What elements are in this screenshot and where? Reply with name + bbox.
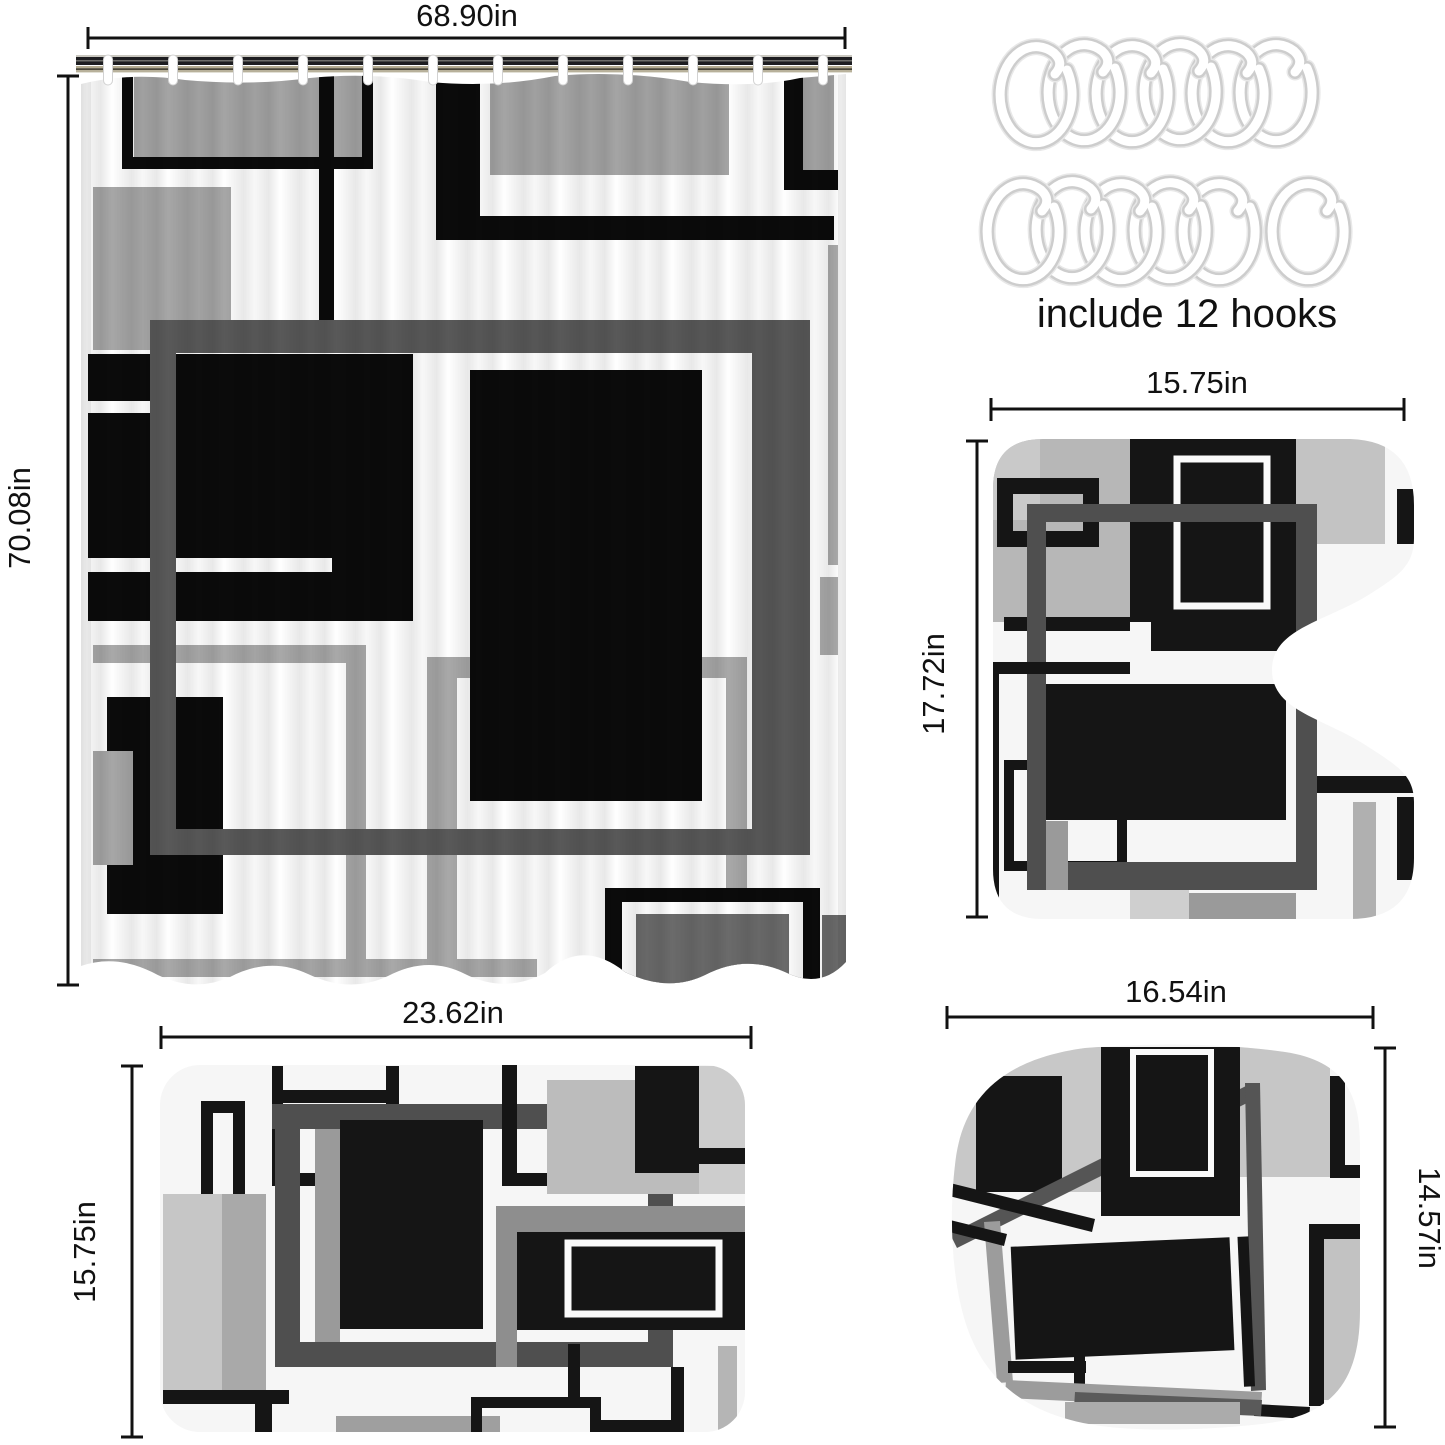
svg-text:70.08in: 70.08in <box>2 467 37 569</box>
svg-text:23.62in: 23.62in <box>402 995 504 1030</box>
svg-text:include 12 hooks: include 12 hooks <box>1037 292 1337 336</box>
svg-text:14.57in: 14.57in <box>1412 1167 1445 1269</box>
svg-text:68.90in: 68.90in <box>416 0 518 33</box>
svg-text:15.75in: 15.75in <box>67 1201 102 1303</box>
svg-text:16.54in: 16.54in <box>1125 974 1227 1009</box>
svg-text:15.75in: 15.75in <box>1146 365 1248 400</box>
svg-text:17.72in: 17.72in <box>916 633 951 735</box>
